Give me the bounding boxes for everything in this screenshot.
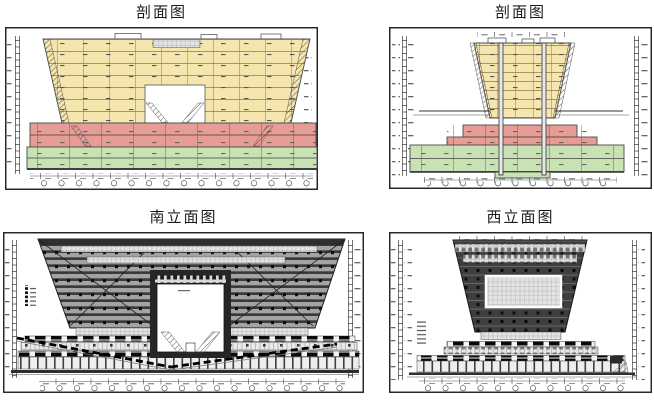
drawing-sheet: 剖面图 xyxy=(0,0,654,403)
dimension-line xyxy=(30,173,313,179)
panel-elevation-south: 南立面图 xyxy=(3,232,364,393)
material-legend xyxy=(20,285,36,306)
dimension-line xyxy=(419,378,625,384)
elevation-west-drawing xyxy=(389,232,652,393)
podium-floors-red xyxy=(447,125,597,145)
elevation-south-drawing xyxy=(3,232,364,393)
level-scale-left xyxy=(7,36,20,174)
podium-floors-red xyxy=(30,123,316,147)
panel-title-elevation-south: 南立面图 xyxy=(3,207,364,229)
central-atrium xyxy=(145,85,205,123)
tower-floors-yellow xyxy=(470,43,575,118)
level-scale-right xyxy=(632,240,645,380)
level-scale-right xyxy=(634,36,649,176)
mezzanine-band xyxy=(481,332,561,340)
side-stair xyxy=(610,356,622,364)
section-cross-drawing xyxy=(389,27,652,189)
level-scale-left xyxy=(5,240,17,378)
material-legend xyxy=(417,320,433,346)
cornice-band xyxy=(87,257,285,263)
media-screen xyxy=(485,275,562,308)
panel-title-elevation-west: 西立面图 xyxy=(389,207,652,229)
dimension-line xyxy=(39,379,345,385)
level-scale-left xyxy=(391,240,412,380)
panel-elevation-west: 西立面图 xyxy=(389,232,652,393)
axis-bubbles xyxy=(40,385,346,393)
axis-bubbles xyxy=(427,182,617,189)
panel-title-section-cross: 剖面图 xyxy=(389,2,652,24)
panel-title-section-long: 剖面图 xyxy=(5,2,318,24)
basement-floors-green xyxy=(27,147,317,170)
axis-bubbles xyxy=(31,180,312,188)
axis-bubbles xyxy=(421,385,625,393)
panel-section-long: 剖面图 xyxy=(5,27,318,190)
cornice-band xyxy=(61,246,317,252)
section-long-drawing xyxy=(5,27,318,190)
central-portal xyxy=(150,270,231,358)
panel-section-cross: 剖面图 xyxy=(389,27,652,189)
